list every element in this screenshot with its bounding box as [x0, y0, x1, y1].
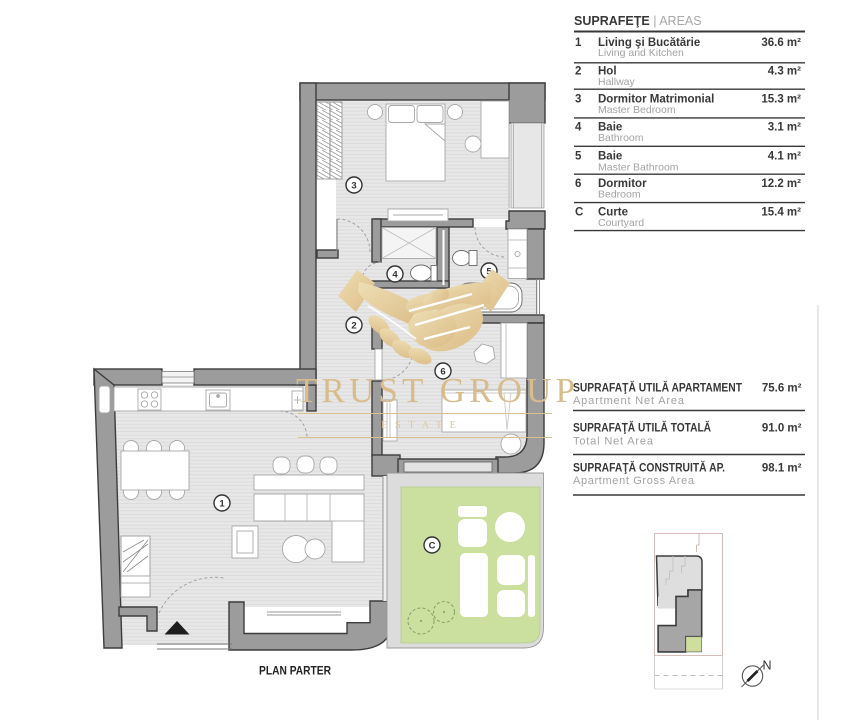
- svg-text:C: C: [429, 541, 436, 552]
- svg-text:12.2 m²: 12.2 m²: [761, 178, 801, 190]
- svg-text:SUPRAFEŢE | AREAS: SUPRAFEŢE | AREAS: [574, 14, 702, 28]
- svg-text:Hallway: Hallway: [598, 76, 636, 88]
- svg-text:4.3 m²: 4.3 m²: [768, 66, 801, 78]
- svg-text:SUPRAFAŢĂ UTILĂ TOTALĂ: SUPRAFAŢĂ UTILĂ TOTALĂ: [573, 422, 711, 435]
- svg-text:4: 4: [392, 270, 398, 281]
- svg-text:Bedroom: Bedroom: [598, 189, 641, 201]
- svg-text:1: 1: [219, 499, 225, 510]
- svg-text:5: 5: [575, 151, 582, 163]
- svg-text:2: 2: [575, 66, 581, 78]
- svg-text:Master Bedroom: Master Bedroom: [598, 104, 676, 116]
- svg-text:ESTATE: ESTATE: [381, 420, 465, 431]
- svg-text:15.3 m²: 15.3 m²: [761, 94, 801, 106]
- svg-text:2: 2: [351, 321, 356, 332]
- svg-text:4: 4: [575, 122, 582, 134]
- svg-text:15.4 m²: 15.4 m²: [761, 207, 801, 219]
- svg-text:TRUST GROUP: TRUST GROUP: [296, 371, 575, 410]
- svg-text:Living and Kitchen: Living and Kitchen: [598, 47, 684, 59]
- svg-text:N: N: [763, 659, 772, 673]
- svg-text:PLAN PARTER: PLAN PARTER: [259, 664, 331, 678]
- svg-text:Total Net Area: Total Net Area: [573, 436, 654, 448]
- svg-text:36.6 m²: 36.6 m²: [761, 37, 801, 49]
- svg-text:Courtyard: Courtyard: [598, 217, 644, 229]
- svg-text:4.1 m²: 4.1 m²: [768, 151, 801, 163]
- svg-text:3: 3: [575, 94, 581, 106]
- svg-text:6: 6: [575, 178, 581, 190]
- svg-text:1: 1: [575, 37, 582, 49]
- svg-text:Apartment Net Area: Apartment Net Area: [573, 395, 685, 407]
- svg-text:3.1 m²: 3.1 m²: [768, 122, 801, 134]
- svg-text:SUPRAFAŢĂ UTILĂ APARTAMENT: SUPRAFAŢĂ UTILĂ APARTAMENT: [573, 382, 742, 395]
- svg-text:98.1 m²: 98.1 m²: [762, 463, 802, 475]
- svg-text:Bathroom: Bathroom: [598, 132, 644, 144]
- svg-text:3: 3: [351, 181, 356, 192]
- svg-text:Apartment Gross Area: Apartment Gross Area: [573, 475, 695, 487]
- svg-text:91.0 m²: 91.0 m²: [762, 423, 802, 435]
- svg-text:SUPRAFAŢĂ CONSTRUITĂ AP.: SUPRAFAŢĂ CONSTRUITĂ AP.: [573, 462, 725, 475]
- svg-text:Master Bathroom: Master Bathroom: [598, 162, 679, 174]
- svg-text:75.6 m²: 75.6 m²: [762, 383, 802, 395]
- svg-text:C: C: [575, 207, 583, 219]
